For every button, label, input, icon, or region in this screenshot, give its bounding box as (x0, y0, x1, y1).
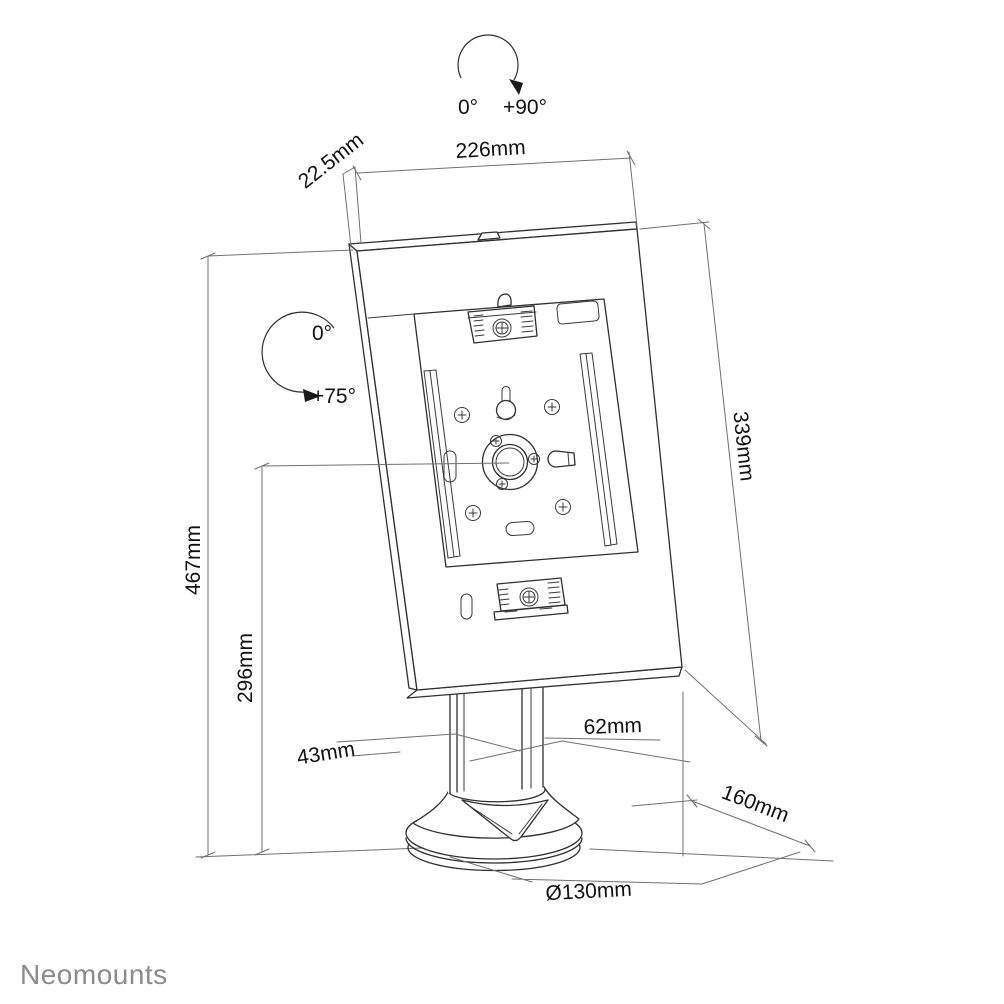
dim-width-label: 226mm (455, 136, 526, 163)
dim-thickness-label: 22.5mm (294, 128, 368, 193)
dim-base-diameter: Ø130mm (450, 852, 800, 905)
camera-bump (478, 232, 500, 240)
tilt-start-label: 0° (312, 322, 332, 345)
top-tab (498, 294, 511, 307)
dim-total-height-label: 467mm (182, 525, 205, 595)
pole (448, 681, 543, 793)
dim-hub-height-label: 296mm (234, 633, 257, 703)
drawing-page: 467mm 296mm 226mm 22.5mm 339mm 43mm (0, 0, 1004, 1004)
rotation-start-label: 0° (458, 96, 478, 119)
rotation-end-label: +90° (503, 96, 547, 119)
dim-base-diameter-label: Ø130mm (545, 878, 632, 905)
rotation-annotation: 0° +90° (458, 35, 547, 119)
tilt-end-label: +75° (312, 385, 356, 408)
tilt-annotation: 0° +75° (262, 312, 356, 408)
dim-pole-depth-label: 62mm (583, 714, 642, 739)
rotation-arrow-head (509, 79, 523, 95)
dim-base-depth: 160mm (590, 781, 833, 861)
technical-drawing: 467mm 296mm 226mm 22.5mm 339mm 43mm (0, 0, 1004, 1004)
dim-base-depth-label: 160mm (719, 781, 793, 828)
dim-face-height-label: 339mm (728, 410, 758, 482)
dim-pole-width-label: 43mm (295, 738, 356, 770)
bottom-clamp (494, 578, 568, 620)
tablet-enclosure (349, 222, 682, 698)
side-pin (548, 451, 575, 467)
brand-logo: Neomounts (20, 959, 168, 990)
